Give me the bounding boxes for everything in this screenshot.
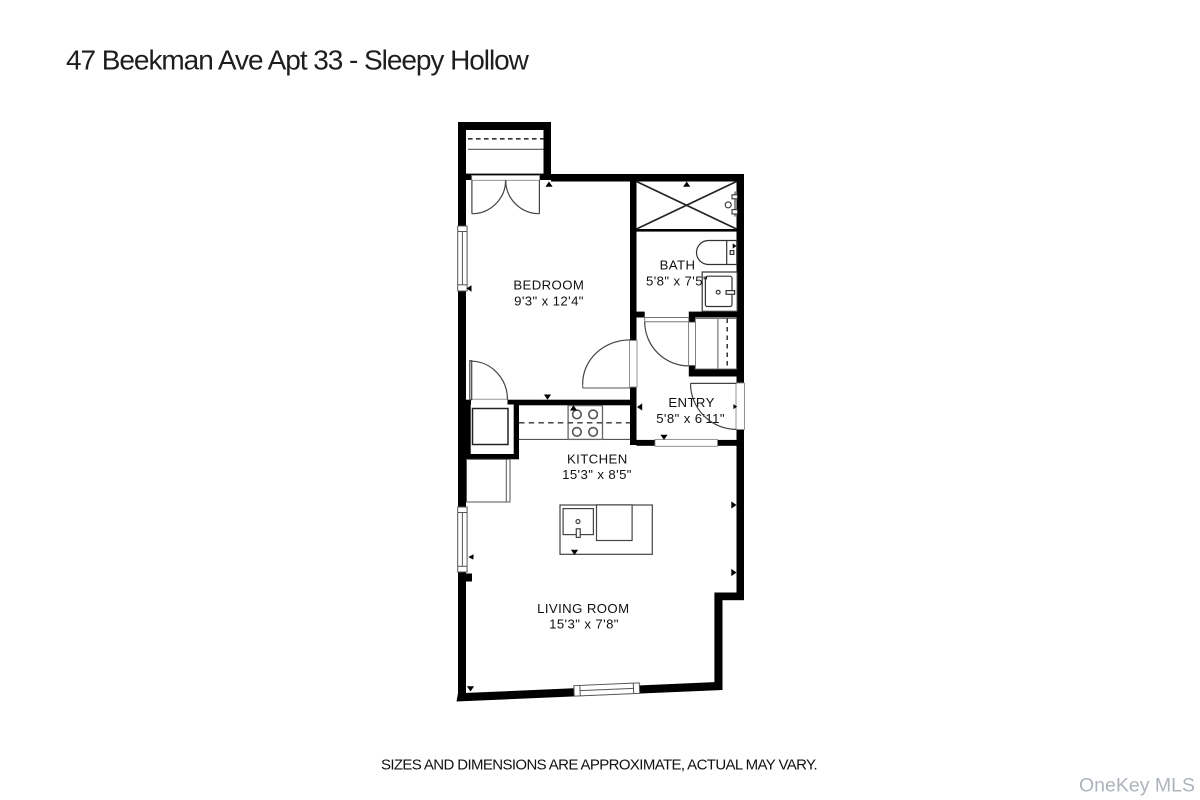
svg-text:ENTRY: ENTRY xyxy=(668,395,714,410)
svg-text:OneKey MLS: OneKey MLS xyxy=(1079,775,1195,797)
svg-text:BATH: BATH xyxy=(660,257,696,272)
svg-text:SIZES AND DIMENSIONS ARE APPRO: SIZES AND DIMENSIONS ARE APPROXIMATE, AC… xyxy=(381,756,817,773)
svg-text:47 Beekman Ave Apt 33 - Sleepy: 47 Beekman Ave Apt 33 - Sleepy Hollow xyxy=(66,45,530,76)
svg-text:15'3" x 7'8": 15'3" x 7'8" xyxy=(549,616,619,631)
svg-text:LIVING ROOM: LIVING ROOM xyxy=(537,601,629,616)
svg-text:5'8" x 7'5": 5'8" x 7'5" xyxy=(646,274,708,289)
svg-text:9'3" x 12'4": 9'3" x 12'4" xyxy=(514,294,584,309)
svg-text:BEDROOM: BEDROOM xyxy=(513,278,584,293)
svg-text:KITCHEN: KITCHEN xyxy=(567,452,628,467)
svg-text:15'3" x 8'5": 15'3" x 8'5" xyxy=(562,467,632,482)
